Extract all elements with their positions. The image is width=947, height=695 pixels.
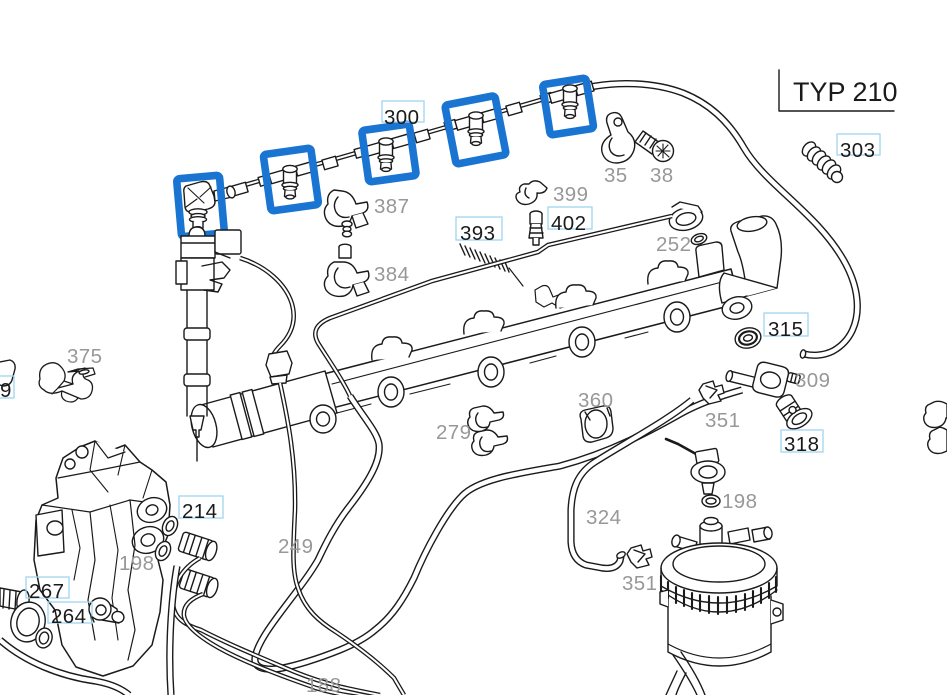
svg-text:188: 188 [306,674,341,695]
svg-text:303: 303 [840,139,875,162]
svg-text:324: 324 [586,506,621,529]
svg-text:402: 402 [551,212,586,235]
svg-text:387: 387 [374,195,409,218]
svg-text:399: 399 [553,183,588,206]
svg-text:360: 360 [578,389,613,412]
svg-text:300: 300 [384,106,419,129]
svg-text:38: 38 [650,164,674,187]
svg-text:35: 35 [604,164,628,187]
svg-text:252: 252 [656,233,691,256]
svg-text:309: 309 [795,369,830,392]
svg-text:315: 315 [768,318,803,341]
svg-text:375: 375 [67,345,102,368]
svg-text:384: 384 [374,263,409,286]
svg-text:393: 393 [460,222,495,245]
svg-text:198: 198 [119,552,154,575]
svg-text:351: 351 [705,409,740,432]
svg-text:267: 267 [29,580,64,603]
svg-text:318: 318 [784,433,819,456]
svg-text:9: 9 [0,379,12,402]
svg-text:264: 264 [51,605,86,628]
svg-text:214: 214 [182,500,217,523]
svg-text:351: 351 [622,572,657,595]
svg-text:TYP 210: TYP 210 [793,77,898,107]
svg-text:198: 198 [722,490,757,513]
svg-text:249: 249 [278,535,313,558]
svg-text:279: 279 [436,421,471,444]
